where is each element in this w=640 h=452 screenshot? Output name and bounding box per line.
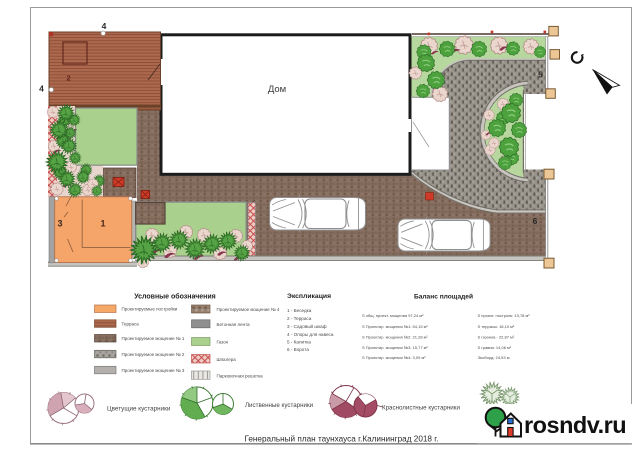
svg-text:3: 3 xyxy=(57,219,62,229)
svg-text:S общ. проект. мощения 97,24 м: S общ. проект. мощения 97,24 м² xyxy=(362,313,424,318)
svg-text:S Проектир. мощения №1: 54,15: S Проектир. мощения №1: 54,15 м² xyxy=(362,324,428,329)
svg-text:Бетонная лента: Бетонная лента xyxy=(217,322,251,327)
svg-text:Генеральный план таунхауса г.К: Генеральный план таунхауса г.Калининград… xyxy=(244,435,438,444)
svg-text:Баланс площадей: Баланс площадей xyxy=(414,293,473,301)
svg-text:S Проектир. мощения №2: 21,28: S Проектир. мощения №2: 21,28 м² xyxy=(362,335,428,340)
svg-text:5 - Калитка: 5 - Калитка xyxy=(287,340,311,345)
svg-text:1: 1 xyxy=(100,219,105,229)
svg-text:Газон: Газон xyxy=(217,340,229,345)
svg-text:2 - Терраса: 2 - Терраса xyxy=(287,316,312,321)
svg-text:Терраса: Терраса xyxy=(122,322,140,327)
svg-text:S Проектир. мощения №3: 15,77: S Проектир. мощения №3: 15,77 м² xyxy=(362,345,428,350)
svg-text:6 - Ворота: 6 - Ворота xyxy=(287,347,309,352)
svg-text:Дом: Дом xyxy=(268,84,286,95)
svg-text:Краснолистные кустарники: Краснолистные кустарники xyxy=(382,405,460,412)
svg-text:Шпалера: Шпалера xyxy=(217,357,237,362)
svg-text:S газонов - 22,87 м²: S газонов - 22,87 м² xyxy=(478,335,515,340)
svg-text:Условные обозначения: Условные обозначения xyxy=(134,293,216,301)
svg-text:S проект. построек: 13,78 м²: S проект. построек: 13,78 м² xyxy=(478,313,531,318)
svg-text:5: 5 xyxy=(538,70,543,80)
svg-text:Проектируемое мощение № 2: Проектируемое мощение № 2 xyxy=(122,352,185,357)
svg-text:Экоборд: 24,53 м: Экоборд: 24,53 м xyxy=(478,355,510,360)
svg-text:Проектируемое мощение № 4: Проектируемое мощение № 4 xyxy=(217,307,280,312)
svg-text:Проектируемые постройки: Проектируемые постройки xyxy=(122,306,178,312)
svg-text:4: 4 xyxy=(102,21,107,31)
svg-text:Проектируемое мощение № 1: Проектируемое мощение № 1 xyxy=(122,336,185,341)
svg-text:2: 2 xyxy=(67,74,71,83)
svg-text:S террасы: 18,10 м²: S террасы: 18,10 м² xyxy=(478,324,515,329)
svg-text:Экспликация: Экспликация xyxy=(287,293,331,300)
svg-text:Лиственные кустарники: Лиственные кустарники xyxy=(245,402,314,409)
svg-text:4: 4 xyxy=(39,84,44,94)
svg-text:rosndv.ru: rosndv.ru xyxy=(524,412,626,438)
svg-text:1 - Беседка: 1 - Беседка xyxy=(287,308,312,313)
svg-text:4 - Опоры для навеса: 4 - Опоры для навеса xyxy=(287,332,334,337)
svg-text:Цветущие кустарники: Цветущие кустарники xyxy=(107,406,171,413)
svg-text:6: 6 xyxy=(533,216,538,226)
svg-text:Проектируемое мощение № 3: Проектируемое мощение № 3 xyxy=(122,368,185,373)
svg-text:S Проектир. мощения №4: 3,09 м: S Проектир. мощения №4: 3,09 м² xyxy=(362,355,426,360)
svg-text:S гравия: 14,06 м²: S гравия: 14,06 м² xyxy=(478,345,512,350)
svg-text:3 - Садовый шкаф: 3 - Садовый шкаф xyxy=(287,323,327,329)
svg-text:Парковочная решетка: Парковочная решетка xyxy=(217,373,264,378)
